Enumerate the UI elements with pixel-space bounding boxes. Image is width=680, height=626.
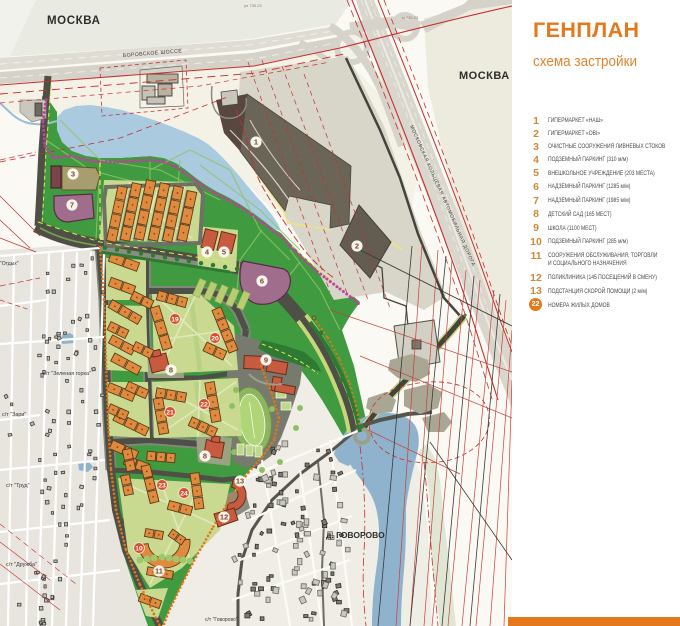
svg-text:10: 10 (135, 545, 143, 552)
svg-text:9: 9 (264, 356, 268, 365)
svg-text:1: 1 (254, 138, 258, 147)
svg-text:24: 24 (180, 490, 188, 497)
svg-text:с/т "Зеленая горка": с/т "Зеленая горка" (43, 371, 91, 377)
svg-text:21: 21 (166, 409, 174, 416)
svg-text:6: 6 (260, 277, 264, 286)
svg-text:22: 22 (200, 401, 208, 408)
svg-text:19: 19 (171, 316, 179, 323)
svg-text:МОСКВА: МОСКВА (47, 15, 101, 27)
svg-text:7: 7 (70, 201, 74, 210)
svg-text:"Отдых": "Отдых" (0, 261, 19, 267)
svg-text:с/т "Труд": с/т "Труд" (6, 483, 30, 489)
svg-text:20: 20 (211, 335, 219, 342)
svg-text:23: 23 (158, 482, 166, 489)
svg-text:11: 11 (155, 567, 163, 576)
svg-text:с/т "Зари": с/т "Зари" (2, 412, 26, 418)
svg-text:ул 730.23: ул 730.23 (244, 3, 262, 8)
svg-text:м 730.23: м 730.23 (402, 15, 419, 20)
svg-text:13: 13 (236, 477, 244, 486)
svg-text:д. ГОВОРОВО: д. ГОВОРОВО (326, 530, 385, 540)
svg-text:3: 3 (71, 170, 75, 179)
svg-text:с/т "Дружба": с/т "Дружба" (6, 562, 37, 568)
svg-text:8: 8 (203, 452, 207, 461)
svg-text:МОСКВА: МОСКВА (459, 70, 510, 82)
svg-text:12: 12 (220, 513, 228, 522)
svg-text:2: 2 (355, 242, 359, 251)
svg-text:с/т "Говорово": с/т "Говорово" (205, 617, 238, 623)
svg-text:8: 8 (169, 366, 173, 375)
svg-text:5: 5 (222, 248, 226, 257)
